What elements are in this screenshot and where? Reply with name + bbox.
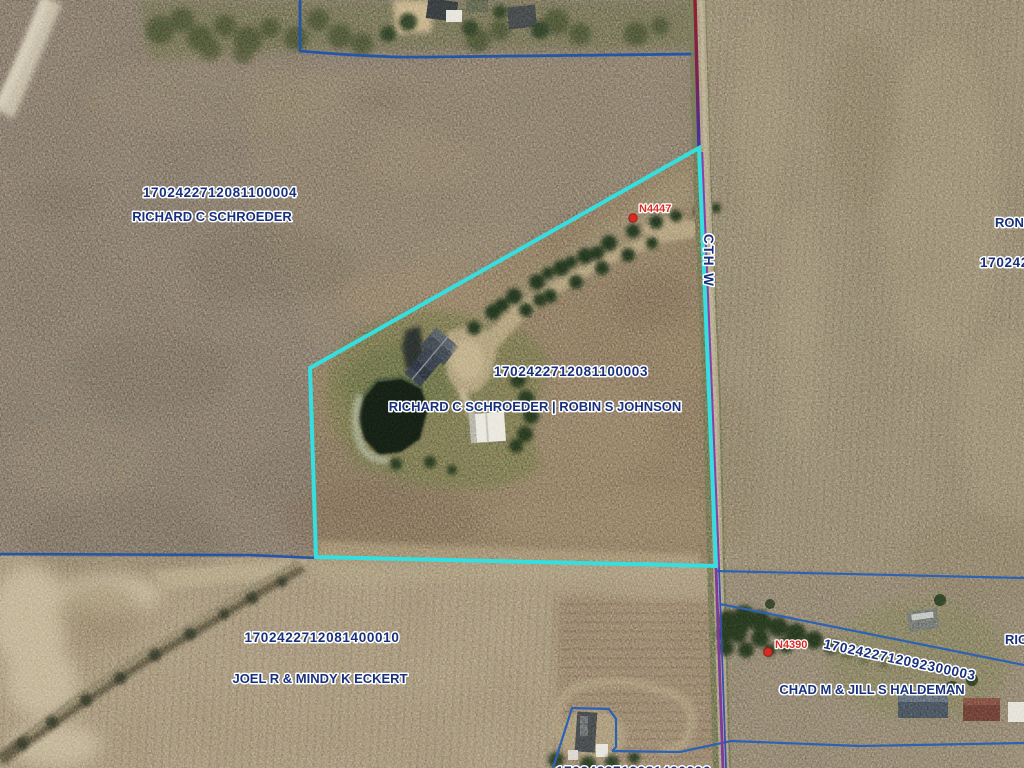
svg-text:RICHARD C SCHROEDER: RICHARD C SCHROEDER bbox=[132, 209, 292, 224]
svg-text:N4390: N4390 bbox=[775, 639, 807, 651]
svg-text:JOEL R & MINDY K ECKERT: JOEL R & MINDY K ECKERT bbox=[232, 671, 407, 686]
svg-text:RON: RON bbox=[995, 215, 1024, 230]
svg-text:RIC: RIC bbox=[1005, 632, 1024, 647]
svg-text:1702422712081400010: 1702422712081400010 bbox=[244, 630, 399, 645]
svg-text:CTH W: CTH W bbox=[701, 234, 716, 288]
svg-text:RICHARD C SCHROEDER | ROBIN S: RICHARD C SCHROEDER | ROBIN S JOHNSON bbox=[389, 399, 682, 414]
svg-text:1702422712081100004: 1702422712081100004 bbox=[143, 185, 297, 200]
svg-text:1702422712081400006: 1702422712081400006 bbox=[556, 764, 711, 768]
svg-text:N4447: N4447 bbox=[639, 203, 671, 215]
svg-text:1702422712081100003: 1702422712081100003 bbox=[494, 364, 648, 379]
svg-text:170242: 170242 bbox=[980, 255, 1024, 270]
svg-text:CHAD M & JILL S HALDEMAN: CHAD M & JILL S HALDEMAN bbox=[779, 682, 964, 697]
